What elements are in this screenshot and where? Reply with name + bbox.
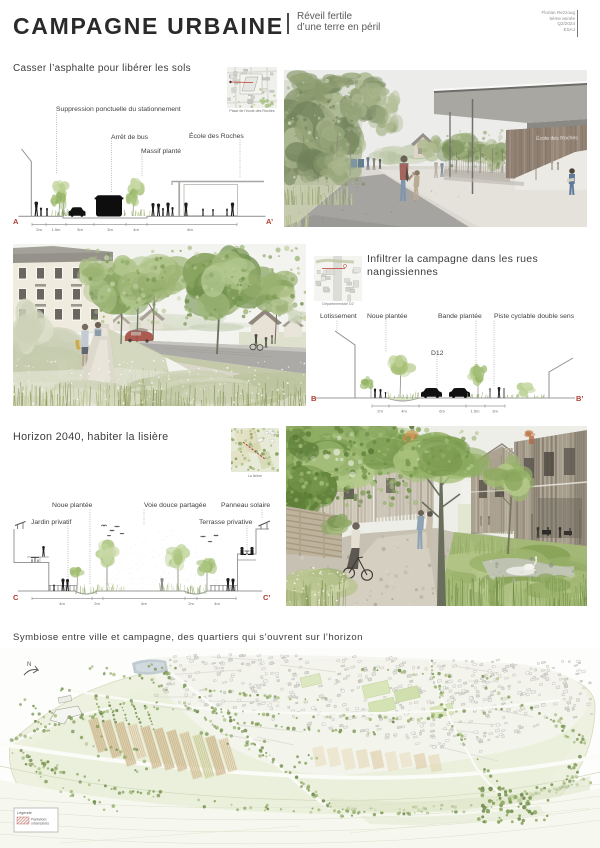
svg-text:A’: A’ <box>266 217 273 226</box>
svg-text:2m: 2m <box>188 601 194 606</box>
svg-text:3m: 3m <box>107 227 113 232</box>
svg-text:N: N <box>27 662 31 668</box>
svg-text:urbanisables: urbanisables <box>31 822 49 826</box>
svg-text:4m: 4m <box>59 601 65 606</box>
svg-text:Jardin privatif: Jardin privatif <box>31 519 72 526</box>
svg-text:Piste cyclable double sens: Piste cyclable double sens <box>494 313 575 320</box>
svg-text:1.5m: 1.5m <box>52 227 62 232</box>
svg-text:B: B <box>311 394 317 403</box>
svg-text:Bande plantée: Bande plantée <box>438 313 482 320</box>
svg-text:La lisière: La lisière <box>248 474 262 478</box>
svg-text:4m: 4m <box>401 409 407 414</box>
svg-text:École des Roches: École des Roches <box>536 134 578 142</box>
svg-text:Lotissement: Lotissement <box>320 313 357 320</box>
svg-text:B’: B’ <box>576 394 584 403</box>
svg-text:Voie douce partagée: Voie douce partagée <box>144 502 207 509</box>
svg-text:Suppression ponctuelle du stat: Suppression ponctuelle du stationnement <box>56 106 181 113</box>
svg-text:Arrêt de bus: Arrêt de bus <box>111 134 149 141</box>
svg-text:Noue plantée: Noue plantée <box>367 313 408 320</box>
svg-text:6m: 6m <box>141 601 147 606</box>
svg-text:6m: 6m <box>439 409 445 414</box>
svg-text:Panneau solaire: Panneau solaire <box>221 502 270 509</box>
svg-text:3m: 3m <box>492 409 498 414</box>
svg-text:D12: D12 <box>431 350 444 357</box>
svg-text:École des Roches: École des Roches <box>189 131 244 140</box>
svg-text:A: A <box>13 217 19 226</box>
svg-text:5m: 5m <box>77 227 83 232</box>
svg-text:4m: 4m <box>214 601 220 606</box>
svg-text:2m: 2m <box>377 409 383 414</box>
svg-text:Légende: Légende <box>17 811 32 815</box>
svg-text:C: C <box>13 593 19 602</box>
svg-text:2m: 2m <box>36 227 42 232</box>
svg-text:Massif planté: Massif planté <box>141 148 181 155</box>
svg-text:C’: C’ <box>263 593 271 602</box>
svg-text:Noue plantée: Noue plantée <box>52 502 93 509</box>
svg-text:8m: 8m <box>187 227 193 232</box>
svg-text:4m: 4m <box>133 227 139 232</box>
svg-text:1.5m: 1.5m <box>471 409 481 414</box>
svg-text:Terrasse privative: Terrasse privative <box>199 519 252 526</box>
svg-text:2m: 2m <box>94 601 100 606</box>
